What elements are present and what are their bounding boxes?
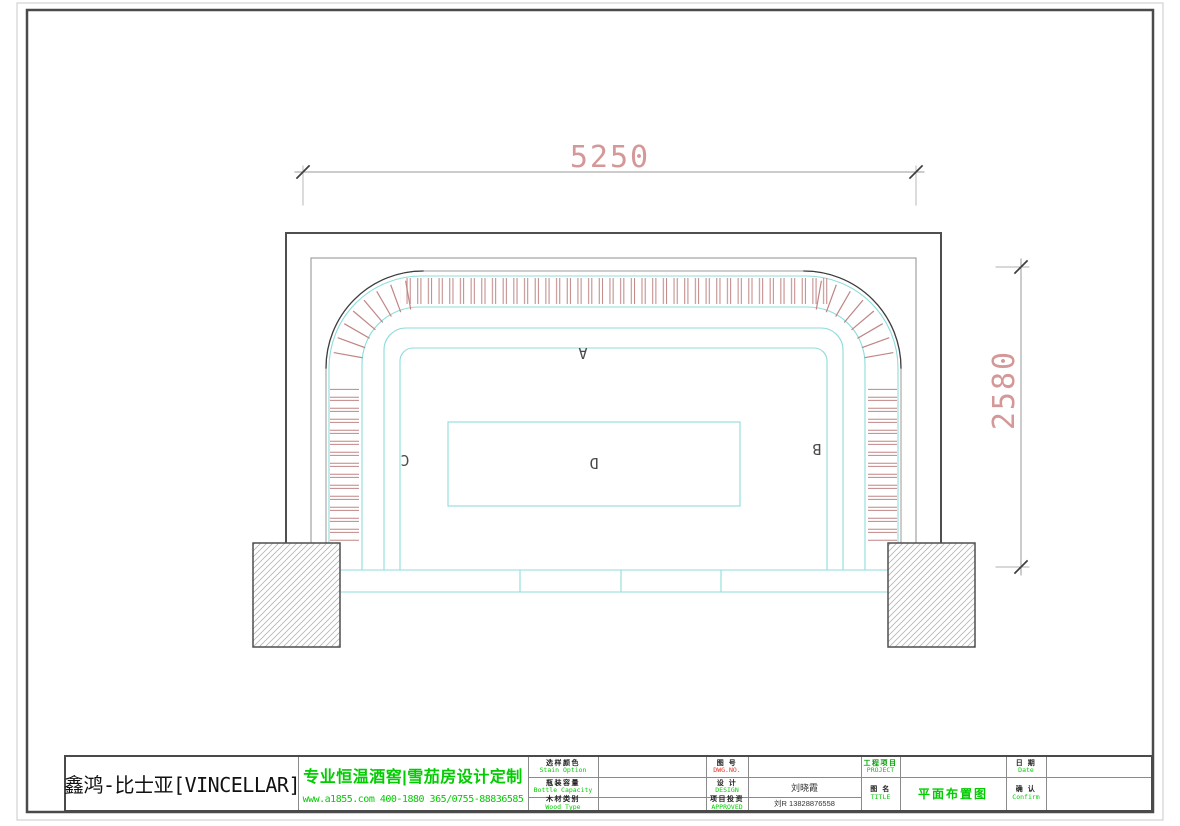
drawing-title: 平面布置图 <box>900 777 1006 810</box>
field-title-label: 图 名 TITLE <box>861 777 900 810</box>
company-slogan-cell: 专业恒温酒窖|雪茄房设计定制 www.a1855.com 400-1880 36… <box>298 757 528 810</box>
field-design-label: 设 计 DESIGN <box>706 777 748 797</box>
rack-slats-left <box>330 387 359 541</box>
field-dwgno-value <box>748 757 861 777</box>
corner-fan-left <box>334 281 410 357</box>
field-wood-label: 木材类别 Wood Type <box>528 797 598 810</box>
dimension-right: 2580 <box>987 259 1029 575</box>
company-contact: www.a1855.com 400-1880 365/0755-88836585 <box>303 794 524 805</box>
field-bottle-label: 瓶装容量 Bottle Capacity <box>528 777 598 797</box>
company-name: 鑫鸿-比士亚[VINCELLAR] <box>66 757 298 810</box>
field-stain-label: 选样颜色 Stain Option <box>528 757 598 777</box>
field-design-value: 刘晓霞 <box>748 777 861 797</box>
field-project-value <box>900 757 1006 777</box>
dimension-top: 5250 <box>295 140 924 205</box>
field-date-value <box>1046 757 1151 777</box>
slogan-text: 专业恒温酒窖|雪茄房设计定制 <box>303 763 522 787</box>
field-stain-value <box>598 757 706 777</box>
wine-rack <box>326 271 901 570</box>
zone-label-c: C <box>400 451 409 469</box>
field-dwgno-label: 图 号 DWG.NO. <box>706 757 748 777</box>
floor-plan: A B C D 5250 2580 <box>0 0 1180 826</box>
field-bottle-value <box>598 777 706 797</box>
inner-wall <box>311 258 916 570</box>
bottom-counter <box>340 570 888 592</box>
zone-label-b: B <box>812 440 821 458</box>
title-block: 鑫鸿-比士亚[VINCELLAR] 专业恒温酒窖|雪茄房设计定制 www.a18… <box>64 755 1153 812</box>
field-confirm-value <box>1046 777 1151 810</box>
rack-slats-right <box>868 387 897 541</box>
rack-slats-top <box>400 278 828 304</box>
field-confirm-label: 确 认 Confirm <box>1006 777 1046 810</box>
sheet-frame <box>27 10 1153 812</box>
column-right <box>888 543 975 647</box>
column-left <box>253 543 340 647</box>
zone-label-a: A <box>578 344 587 362</box>
dimension-top-value: 5250 <box>570 140 650 175</box>
field-wood-value <box>598 797 706 810</box>
field-date-label: 日 期 Date <box>1006 757 1046 777</box>
room-interior-lines <box>384 328 843 570</box>
field-project-label: 工程项目 PROJECT <box>861 757 900 777</box>
zone-label-d: D <box>589 454 598 472</box>
field-approved-label: 项目投资 APPROVED <box>706 797 748 810</box>
field-approved-value: 刘R 13828876558 <box>748 797 861 810</box>
dimension-right-value: 2580 <box>987 350 1022 430</box>
